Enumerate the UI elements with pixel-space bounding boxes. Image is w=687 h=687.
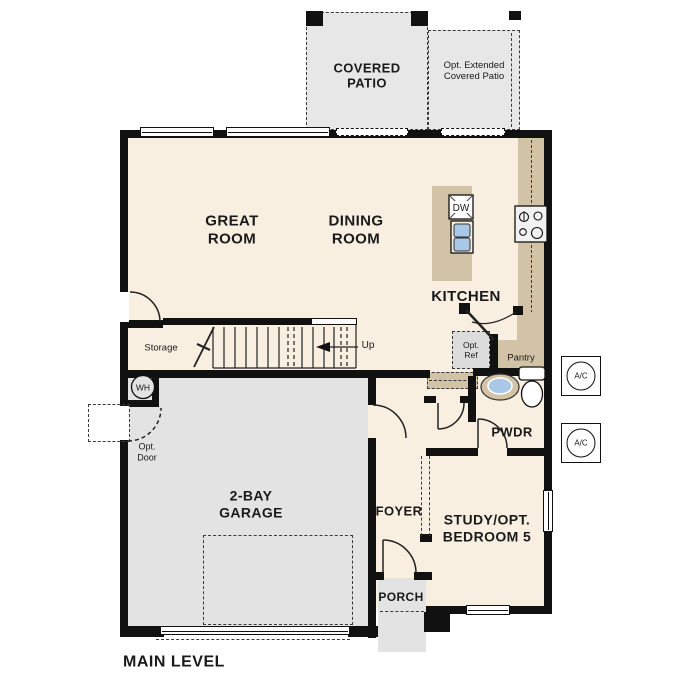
pantry-label: Pantry bbox=[507, 352, 534, 363]
wall-study-top-left bbox=[426, 448, 478, 456]
pantry-shelf-vertical bbox=[517, 312, 544, 340]
dining-room-label: DININGROOM bbox=[329, 212, 384, 247]
porch-edge-dashed bbox=[380, 611, 424, 612]
kitchen-counter-centerline bbox=[531, 140, 532, 328]
covered-patio-label: COVEREDPATIO bbox=[333, 61, 400, 92]
foyer-study-opening-left bbox=[421, 456, 422, 536]
opt-door-label: Opt.Door bbox=[137, 441, 157, 462]
wall-storage-door-stub bbox=[128, 320, 163, 328]
opt-ref-label: Opt.Ref bbox=[463, 340, 479, 360]
floor-plan: DW WH A/C A/C bbox=[0, 0, 687, 687]
wall-garage-bottom-left bbox=[120, 626, 164, 637]
wall-pantry-powder bbox=[473, 368, 552, 376]
patio-post-right bbox=[411, 11, 428, 26]
storage-door-opening bbox=[119, 292, 129, 322]
foyer-study-opening-right bbox=[429, 456, 430, 536]
sliding-door-extended-patio bbox=[441, 128, 505, 136]
ac-unit-2: A/C bbox=[561, 423, 601, 463]
window-great-room-2 bbox=[226, 127, 330, 137]
extended-patio-corner-tick bbox=[509, 11, 521, 20]
window-study-bottom bbox=[466, 605, 510, 615]
up-label: Up bbox=[362, 340, 375, 352]
extended-patio-inner-dashed-line bbox=[511, 33, 512, 127]
kitchen-label: KITCHEN bbox=[431, 288, 500, 306]
ac-unit-2-label: A/C bbox=[567, 429, 596, 458]
window-great-room-1 bbox=[140, 127, 214, 137]
garage-label: 2-BAYGARAGE bbox=[219, 487, 283, 520]
wall-optref-pantry-stub bbox=[490, 334, 498, 368]
wall-garage-right-lower bbox=[368, 438, 376, 638]
wall-stair-top bbox=[163, 318, 311, 325]
kitchen-island bbox=[432, 186, 472, 281]
storage-label: Storage bbox=[144, 342, 177, 353]
garage-door-swing-area bbox=[203, 535, 353, 625]
wall-closet-stub-right bbox=[460, 396, 476, 403]
foyer-label: FOYER bbox=[376, 503, 423, 518]
wall-foyer-bottom-right bbox=[414, 572, 432, 580]
extended-patio-label: Opt. ExtendedCovered Patio bbox=[444, 60, 505, 82]
wall-closet-stub-left bbox=[424, 396, 436, 403]
porch-step-block bbox=[424, 612, 450, 632]
ac-unit-1-label: A/C bbox=[567, 362, 596, 391]
wall-study-top-right bbox=[507, 448, 552, 456]
wall-hall-top bbox=[128, 370, 430, 378]
stair-railing bbox=[311, 318, 357, 325]
pwdr-label: PWDR bbox=[491, 424, 532, 439]
wall-garage-bottom-right bbox=[348, 626, 378, 637]
ac-unit-1: A/C bbox=[561, 356, 601, 396]
wall-foyer-bottom-left bbox=[368, 572, 384, 580]
porch-label: PORCH bbox=[378, 590, 423, 604]
sliding-door-patio bbox=[336, 128, 408, 136]
wall-left bbox=[120, 130, 128, 637]
great-room-label: GREATROOM bbox=[205, 212, 258, 247]
window-study-right bbox=[543, 490, 553, 532]
garage-door-panel bbox=[160, 626, 350, 635]
study-label: STUDY/OPT.BEDROOM 5 bbox=[443, 511, 531, 544]
garage-door-dashed-line bbox=[156, 639, 350, 640]
opt-door-dashed-box bbox=[88, 404, 130, 442]
wall-kitchen-pantry-stub bbox=[513, 306, 523, 315]
wall-garage-right-upper bbox=[368, 378, 376, 405]
patio-post-left bbox=[306, 11, 323, 26]
plan-title: MAIN LEVEL bbox=[123, 654, 225, 673]
wall-wh-nook-right bbox=[152, 372, 159, 405]
